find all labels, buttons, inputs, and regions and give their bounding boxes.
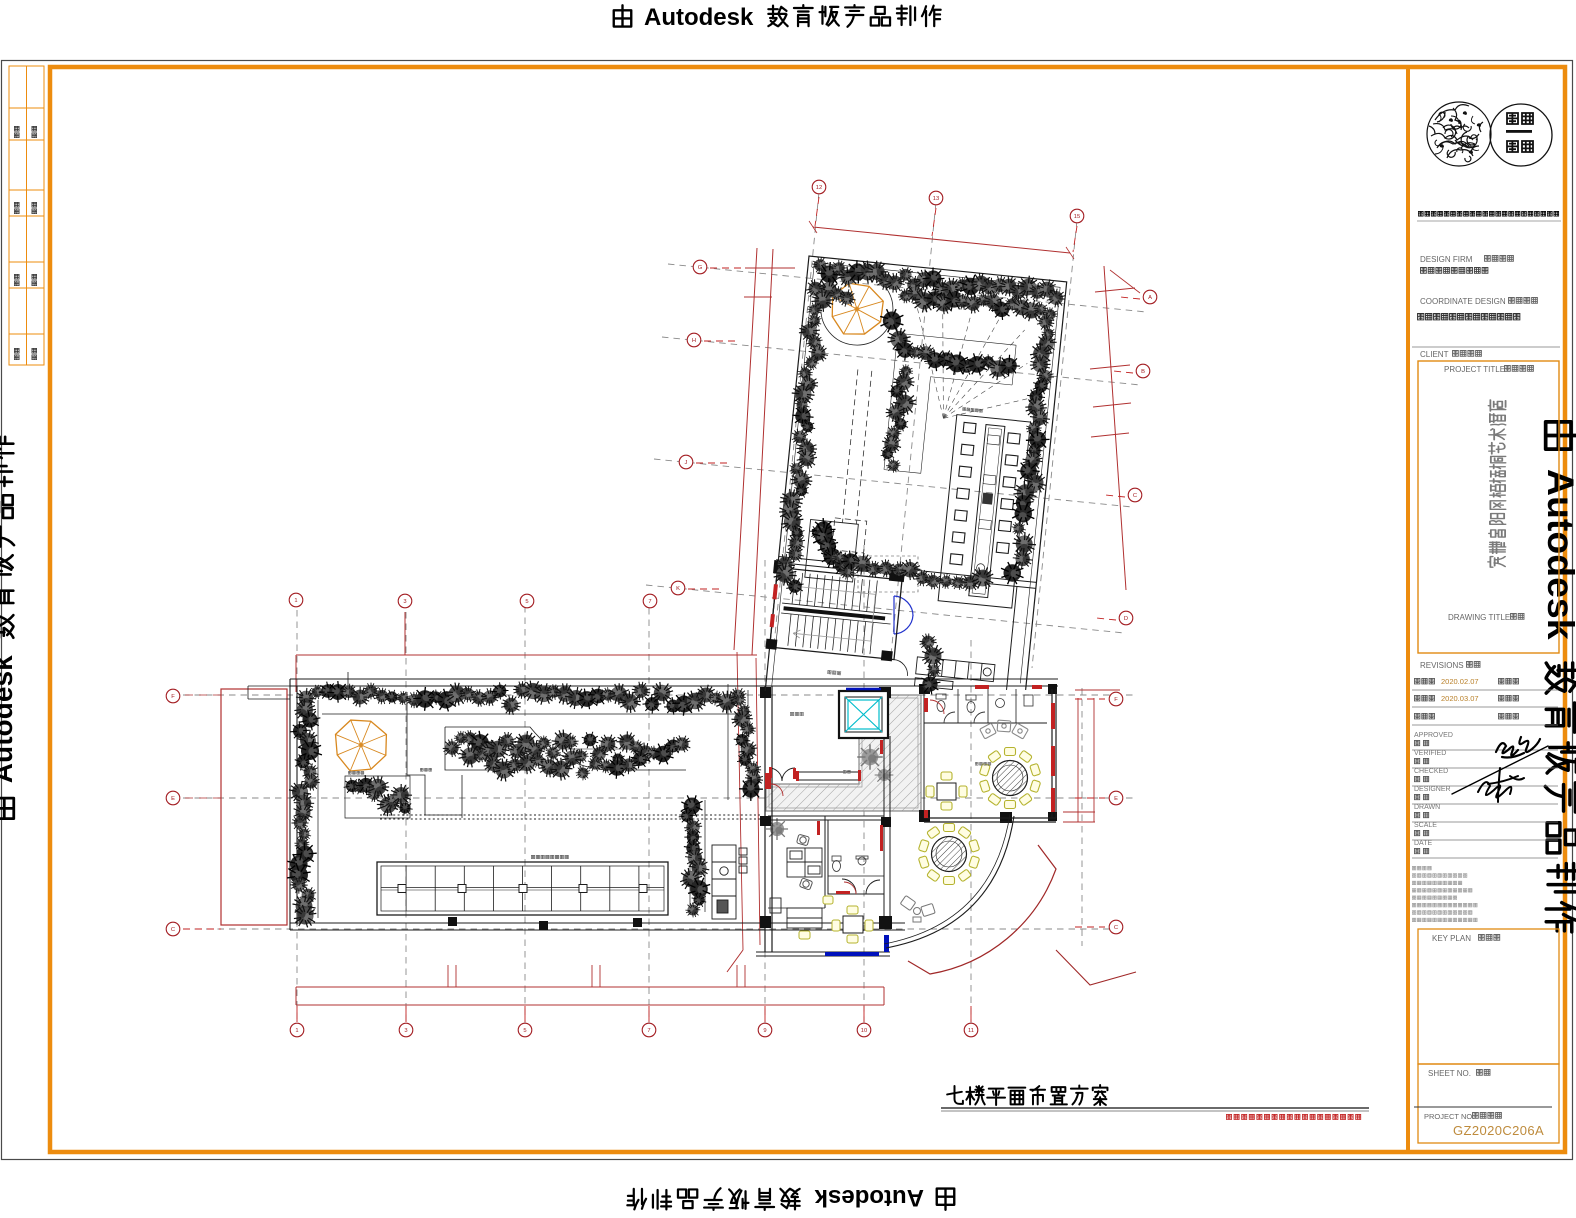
- svg-text:DESIGNER: DESIGNER: [1414, 786, 1451, 793]
- svg-text:PROJECT NO.: PROJECT NO.: [1424, 1112, 1474, 1121]
- svg-text:15: 15: [1074, 214, 1080, 220]
- svg-text:COORDINATE DESIGN: COORDINATE DESIGN: [1420, 297, 1506, 306]
- svg-text:CLIENT: CLIENT: [1420, 350, 1449, 359]
- svg-text:A: A: [1148, 295, 1152, 301]
- svg-text:H: H: [692, 338, 696, 344]
- svg-text:DATE: DATE: [1414, 840, 1432, 847]
- svg-text:SHEET NO.: SHEET NO.: [1428, 1069, 1471, 1078]
- svg-text:F: F: [1114, 697, 1118, 703]
- svg-text:1: 1: [295, 1028, 298, 1034]
- svg-text:7: 7: [648, 599, 651, 605]
- svg-text:KEY PLAN: KEY PLAN: [1432, 934, 1471, 943]
- svg-text:C: C: [1133, 493, 1137, 499]
- svg-text:VERIFIED: VERIFIED: [1414, 750, 1446, 757]
- svg-text:C: C: [171, 927, 175, 933]
- svg-text:J: J: [685, 460, 688, 466]
- svg-text:DRAWN: DRAWN: [1414, 804, 1440, 811]
- svg-text:D: D: [1124, 616, 1128, 622]
- svg-text:K: K: [676, 586, 680, 592]
- svg-text:REVISIONS: REVISIONS: [1420, 661, 1464, 670]
- svg-text:B: B: [1141, 369, 1145, 375]
- svg-text:13: 13: [933, 196, 939, 202]
- svg-text:1: 1: [294, 598, 297, 604]
- svg-text:5: 5: [525, 599, 528, 605]
- svg-text:C: C: [1114, 925, 1118, 931]
- svg-text:F: F: [171, 694, 175, 700]
- svg-text:7: 7: [647, 1028, 650, 1034]
- svg-text:2020.03.07: 2020.03.07: [1441, 694, 1479, 703]
- svg-text:APPROVED: APPROVED: [1414, 732, 1453, 739]
- svg-text:PROJECT TITLE: PROJECT TITLE: [1444, 365, 1505, 374]
- svg-text:3: 3: [404, 1028, 407, 1034]
- svg-text:10: 10: [861, 1028, 867, 1034]
- svg-text:SCALE: SCALE: [1414, 822, 1437, 829]
- svg-text:12: 12: [816, 185, 822, 191]
- svg-text:9: 9: [763, 1028, 766, 1034]
- svg-text:3: 3: [403, 599, 406, 605]
- svg-text:E: E: [171, 796, 175, 802]
- svg-text:DRAWING TITLE: DRAWING TITLE: [1448, 613, 1510, 622]
- svg-text:2020.02.07: 2020.02.07: [1441, 677, 1479, 686]
- svg-text:5: 5: [523, 1028, 526, 1034]
- svg-text:CHECKED: CHECKED: [1414, 768, 1448, 775]
- svg-text:DESIGN FIRM: DESIGN FIRM: [1420, 255, 1473, 264]
- svg-text:11: 11: [968, 1028, 974, 1034]
- svg-text:GZ2020C206A: GZ2020C206A: [1453, 1123, 1544, 1138]
- svg-text:E: E: [1114, 796, 1118, 802]
- svg-text:G: G: [698, 265, 703, 271]
